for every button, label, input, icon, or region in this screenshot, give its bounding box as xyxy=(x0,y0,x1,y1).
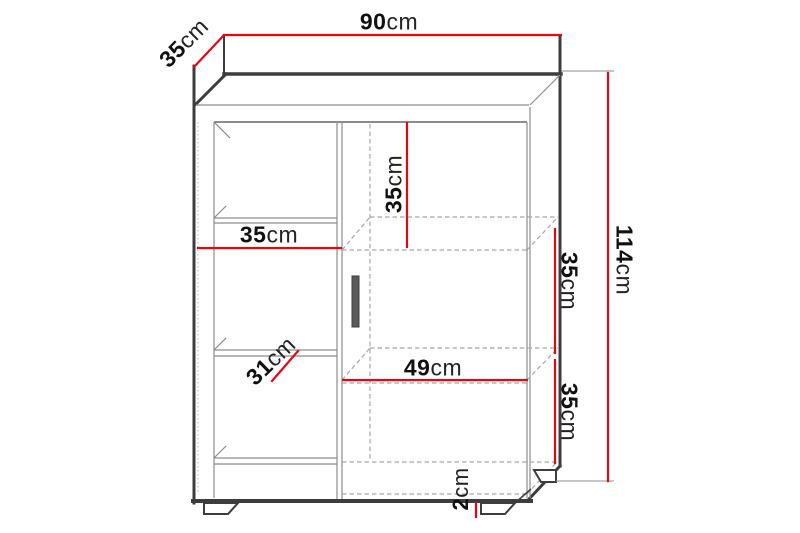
dim-label-right-lower: 35cm xyxy=(558,383,581,441)
dim-label-height: 114cm xyxy=(613,225,636,295)
dim-label-inner-width: 49cm xyxy=(404,357,462,380)
dim-right-lower-value: 35 xyxy=(557,383,583,410)
foot-left xyxy=(204,503,238,514)
cabinet-inner-lines xyxy=(196,75,560,499)
dim-inner-width-value: 49 xyxy=(404,355,431,381)
dim-width-value: 90 xyxy=(360,9,387,35)
dim-left-width-value: 35 xyxy=(240,222,267,248)
dim-door-top-unit: cm xyxy=(381,155,407,187)
dim-label-door-top-height: 35cm xyxy=(383,155,406,213)
dim-label-left-width: 35cm xyxy=(240,224,298,247)
dim-plinth-unit: cm xyxy=(448,467,473,497)
dim-right-lower-unit: cm xyxy=(557,409,583,441)
dimension-lines xyxy=(194,35,608,517)
cabinet-feet xyxy=(204,470,556,514)
dim-label-right-upper: 35cm xyxy=(558,252,581,310)
foot-right-front xyxy=(481,503,515,514)
dim-inner-width-unit: cm xyxy=(430,355,462,381)
dim-plinth-value: 2 xyxy=(448,498,473,511)
dim-label-plinth: 2cm xyxy=(450,467,472,510)
hidden-interior-lines xyxy=(342,124,558,494)
dim-label-width: 90cm xyxy=(360,11,418,34)
cabinet-drawing-svg xyxy=(0,0,800,533)
dim-right-upper-unit: cm xyxy=(557,278,583,310)
dim-height-value: 114 xyxy=(612,225,638,264)
dim-width-unit: cm xyxy=(386,9,418,35)
dim-right-upper-value: 35 xyxy=(557,252,583,279)
dim-door-top-value: 35 xyxy=(381,187,407,214)
dim-left-width-unit: cm xyxy=(266,222,298,248)
cabinet-dimension-diagram: 90cm 35cm 114cm 35cm 35cm 35cm 35cm 49cm… xyxy=(0,0,800,533)
foot-right-back xyxy=(534,470,556,482)
door-handle xyxy=(352,276,359,327)
dim-height-unit: cm xyxy=(612,263,638,295)
